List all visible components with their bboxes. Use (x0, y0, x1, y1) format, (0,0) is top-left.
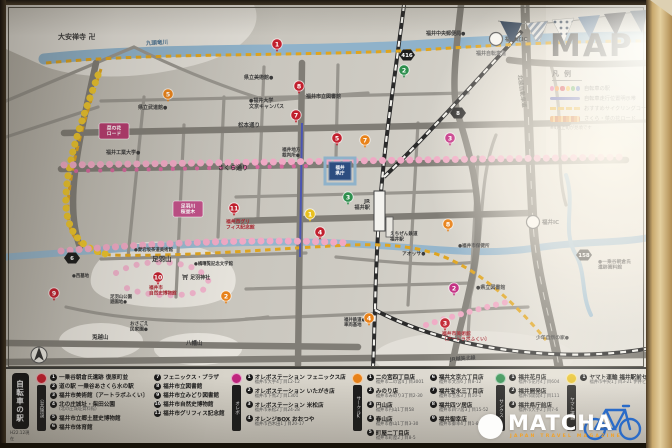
legend-row-stations: 自転車の駅 (550, 85, 644, 92)
section-columns: 1二の宮四丁目店福井市二の宮4丁目30012みのり店福井市みのり3丁目2-303… (367, 373, 489, 442)
directory-item: 1一乗谷朝倉氏遺跡 復原町並 (50, 373, 148, 381)
item-name: 福井市立図書館 (163, 382, 202, 390)
item-number-badge: 1 (367, 374, 374, 381)
item-name: 福井市立郷土歴史博物館 (59, 414, 121, 422)
map-label: おさごえ民家園● (130, 320, 149, 332)
item-name: 福井市自然史博物館 (163, 400, 213, 408)
section-columns: 1オレボステーション フェニックス店福井市大手4丁目12-122オレボステーショ… (246, 373, 346, 442)
cycling-course-swatch (550, 107, 580, 110)
map-label: 兎越山 (92, 333, 109, 341)
matcha-tagline: JAPAN TRAVEL MAGAZINE (510, 435, 622, 440)
item-number-badge: 10 (154, 401, 161, 408)
map-label: ●愛宕坂茶道美術館 (134, 246, 174, 253)
directory-item: 2みのり店福井市みのり3丁目2-30 (367, 387, 424, 400)
directory-item: 5福井市立郷土歴史博物館 (50, 414, 148, 422)
directory-section: サークルK1二の宮四丁目店福井市二の宮4丁目30012みのり店福井市みのり3丁目… (352, 373, 489, 442)
directory-item: 7フェニックス・プラザ (154, 373, 224, 381)
legend-station-dot (560, 86, 564, 91)
item-address: 福井市花月4丁目604 (518, 381, 559, 386)
item-number-badge: 7 (154, 374, 161, 381)
legend-heading: 凡例 (552, 69, 582, 81)
panel-side-note: H22.12現在 (10, 430, 30, 442)
item-number-badge: 6 (430, 374, 437, 381)
item-number-badge: 1 (246, 374, 253, 381)
picture-frame-right (646, 0, 672, 448)
directory-item: 5町屋二丁目店福井市町屋2丁目8-5 (367, 429, 424, 442)
item-number-badge: 2 (50, 383, 57, 390)
item-number-badge: 6 (50, 423, 57, 430)
section-title-bar: サークルK (353, 385, 362, 431)
section-column: 1オレボステーション フェニックス店福井市大手4丁目12-122オレボステーショ… (246, 373, 346, 442)
item-subname: (北の庄城址資料館) (59, 408, 148, 413)
item-address: 福井市米松2丁目24-28 (255, 409, 346, 414)
map-label: ●西墓地 (72, 272, 90, 279)
station-marker-number: 2 (224, 293, 228, 300)
item-address: 福井市下馬2丁目1301 (255, 395, 346, 400)
station-marker-number: 7 (363, 137, 367, 144)
station-marker-number: 8 (297, 83, 301, 90)
matcha-logo-text: MATCHA JAPAN TRAVEL MAGAZINE (508, 413, 622, 440)
picture-frame-left (0, 0, 6, 448)
item-number-badge: 3 (50, 392, 57, 399)
legend-station-dot (555, 86, 559, 91)
bicycle-lane-swatch (550, 97, 580, 100)
map-label: 福井工業大学● (105, 149, 141, 156)
legend-label: おすすめサイクリングコース (584, 105, 646, 112)
map-title: MAP (550, 31, 644, 62)
section-columns: 1一乗谷朝倉氏遺跡 復原町並2道の駅 一乗谷あさくら水の駅3福井市美術館〔アート… (50, 373, 225, 442)
legend-station-dot (566, 86, 570, 91)
legend-station-dot (576, 86, 580, 91)
item-number-badge: 4 (50, 401, 57, 408)
station-marker-number: 1 (308, 211, 312, 218)
item-address: 福井市大手4丁目12-12 (255, 381, 346, 386)
map-paper: 菜の花ロード足羽川桜並木大安禅寺 卍九頭竜川福井自転車道県立武道館●県立美術館●… (6, 5, 646, 443)
matcha-brand: MATCHA (508, 413, 622, 434)
item-address: 福井市みのり3丁目2-30 (376, 395, 424, 400)
legend-label: 自転車の駅 (584, 85, 610, 92)
legend-note: ※4月上旬が見頃です (550, 125, 644, 131)
legend-station-dot (571, 86, 575, 91)
station-marker-number: 4 (318, 229, 323, 236)
map-label: ⛩ 足羽神社 (182, 274, 210, 281)
item-name: 福井市グリフィス記念館 (163, 409, 224, 417)
map-label: さくら通り (218, 164, 248, 172)
item-address: 福井市円山1丁目58 (376, 409, 424, 414)
directory-item: 4春山店福井市春山1丁目3-30 (367, 415, 424, 428)
station-dots-swatch (550, 86, 580, 91)
item-address: 福井市中央1丁目3-21 伊井ビル1階 (589, 381, 646, 386)
station-marker-number: 10 (154, 274, 163, 281)
item-address: 福井市開発4丁目111 (518, 395, 559, 400)
map-label: 大安禅寺 卍 (58, 32, 95, 41)
map-label: 少年自然の家● (535, 334, 569, 341)
item-name: 道の駅 一乗谷あさくら水の駅 (59, 382, 134, 390)
route-8-road (452, 5, 478, 367)
section-color-dot (495, 373, 506, 384)
item-number-badge: 8 (430, 401, 437, 408)
map-tag-label: 菜の花ロード (106, 125, 122, 138)
directory-item: 4北の庄城址・柴田公園(北の庄城址資料館) (50, 400, 148, 413)
station-marker-number: 7 (294, 112, 298, 119)
legend-label: さくら・菜の花ロード (584, 115, 636, 122)
item-name: フェニックス・プラザ (163, 373, 219, 381)
directory-item: 3福井市美術館〔アートラボふくい〕 (50, 391, 148, 399)
directory-item: 8福井四ツ居店福井市四ツ居3丁目15-52 (430, 401, 489, 414)
section-title-bar: 公共施設 (37, 385, 46, 431)
map-tag-label: 足羽川桜並木 (181, 203, 196, 216)
directory-item: 7福井宝永三丁目店福井市宝永3丁目10-1 (430, 387, 489, 400)
item-address: 福井市文京6丁目8-12 (439, 381, 489, 386)
item-address: 福井市春山1丁目3-30 (376, 423, 424, 428)
route-number: 8 (456, 111, 460, 117)
map-label: アオッサ● (402, 250, 425, 257)
item-name: 福井市美術館〔アートラボふくい〕 (59, 391, 148, 399)
item-name: 一乗谷朝倉氏遺跡 復原町並 (59, 373, 128, 381)
item-number-badge: 4 (246, 415, 253, 422)
item-number-badge: 1 (509, 374, 516, 381)
directory-item: 6福井市体育館 (50, 423, 148, 431)
station-marker-number: 3 (443, 320, 447, 327)
panel-side-title-bar: 自転車の駅 (12, 373, 29, 429)
station-marker-number: 3 (448, 135, 452, 142)
forest-area-northwest (6, 5, 257, 77)
section-header: サークルK (352, 373, 364, 442)
item-number-badge: 3 (509, 401, 516, 408)
item-address: 福井市西木田1丁目20-17 (255, 423, 346, 428)
section-color-dot (566, 373, 577, 384)
directory-item: 2福井開発店福井市開発4丁目111 (509, 387, 559, 400)
station-marker-number: 5 (166, 91, 170, 98)
section-header: オレボ (231, 373, 243, 442)
item-number-badge: 7 (430, 387, 437, 394)
section-column: 1一乗谷朝倉氏遺跡 復原町並2道の駅 一乗谷あさくら水の駅3福井市美術館〔アート… (50, 373, 148, 442)
directory-section: 公共施設1一乗谷朝倉氏遺跡 復原町並2道の駅 一乗谷あさくら水の駅3福井市美術館… (35, 373, 225, 442)
map-label: 足羽山 (152, 254, 172, 263)
map-label: 八幡山 (185, 339, 203, 347)
legend-panel: MAP 凡例 自転車の駅 自転車走行位置明示帯 おすすめサイクリングコース さく… (550, 31, 644, 131)
framed-cycling-map-photo: 菜の花ロード足羽川桜並木大安禅寺 卍九頭竜川福井自転車道県立武道館●県立美術館●… (0, 0, 672, 448)
directory-section: オレボ1オレボステーション フェニックス店福井市大手4丁目12-122オレボステ… (231, 373, 346, 442)
directory-item: 1福井花月店福井市花月4丁目604 (509, 373, 559, 386)
item-number-badge: 5 (367, 429, 374, 436)
directory-item: 11福井市グリフィス記念館 (154, 409, 224, 417)
directory-item: 1二の宮四丁目店福井市二の宮4丁目3001 (367, 373, 424, 386)
directory-item: 3オレボステーション 米松店福井市米松2丁目24-28 (246, 401, 346, 414)
item-number-badge: 2 (367, 387, 374, 394)
station-marker-number: 2 (402, 67, 406, 74)
station-marker-number: 5 (335, 135, 339, 142)
directory-item: 1オレボステーション フェニックス店福井市大手4丁目12-12 (246, 373, 346, 386)
directory-item: 10福井市自然史博物館 (154, 400, 224, 408)
item-number-badge: 11 (154, 410, 161, 417)
picture-frame-bottom (0, 443, 672, 448)
item-number-badge: 1 (580, 374, 587, 381)
map-label: 福井鉄道●車両基地 (343, 316, 366, 328)
map-label: ●橘曙覧記念文学館 (194, 260, 234, 267)
directory-item: 1ヤマト運輸 福井駅前センター福井市中央1丁目3-21 伊井ビル1階 (580, 373, 646, 386)
panel-side-title: 自転車の駅 H22.12現在 (10, 373, 30, 442)
matcha-watermark: MATCHA JAPAN TRAVEL MAGAZINE (478, 413, 622, 440)
map-label: 福井中央郵便局● (425, 30, 466, 37)
directory-item: 8福井市立図書館 (154, 382, 224, 390)
jr-fukui-station-building (374, 191, 385, 231)
compass-north-icon (31, 347, 47, 363)
route-number: 416 (401, 53, 413, 59)
station-marker-number: 1 (275, 41, 279, 48)
item-number-badge: 4 (367, 415, 374, 422)
section-color-dot (352, 373, 363, 384)
section-column: 7フェニックス・プラザ8福井市立図書館9福井市立みどり図書館10福井市自然史博物… (154, 373, 224, 442)
section-column: 1二の宮四丁目店福井市二の宮4丁目30012みのり店福井市みのり3丁目2-303… (367, 373, 424, 442)
map-label: ●一乗谷朝倉氏遺跡資料館 (597, 258, 631, 271)
legend-station-dot (550, 86, 554, 91)
item-address: 福井市二の宮4丁目3001 (376, 381, 424, 386)
station-marker-number: 2 (452, 285, 456, 292)
item-address: 福井市町屋2丁目8-5 (376, 437, 424, 442)
item-number-badge: 9 (430, 415, 437, 422)
map-label: 県立美術館● (244, 74, 274, 81)
legend-row-flower: さくら・菜の花ロード (550, 115, 644, 122)
section-color-dot (36, 373, 47, 384)
item-number-badge: 2 (509, 387, 516, 394)
legend-row-lane: 自転車走行位置明示帯 (550, 95, 644, 102)
item-number-badge: 9 (154, 392, 161, 399)
map-label: ●県立図書館 (476, 284, 505, 291)
item-name: 福井市体育館 (59, 423, 93, 431)
map-area: 菜の花ロード足羽川桜並木大安禅寺 卍九頭竜川福井自転車道県立武道館●県立美術館●… (6, 5, 646, 367)
map-label: えちぜん鉄道福井駅 (389, 230, 418, 242)
map-label: 福井県庁 (334, 164, 345, 176)
map-label: 県立武道館● (138, 104, 168, 111)
directory-item: 3円山店福井市円山1丁目58 (367, 401, 424, 414)
station-marker-number: 11 (230, 205, 239, 212)
flower-road-swatch (550, 116, 580, 122)
section-header: 公共施設 (35, 373, 47, 442)
directory-item: 4オレンジBOX おおつや福井市西木田1丁目20-17 (246, 415, 346, 428)
map-label: 福井自転車道 (475, 50, 506, 57)
map-label: 松本通り (238, 121, 260, 129)
item-number-badge: 3 (246, 401, 253, 408)
station-marker-number: 4 (367, 315, 372, 322)
directory-item: 2オレボステーション いたがき店福井市下馬2丁目1301 (246, 387, 346, 400)
interchange-label: 福井IC (541, 218, 559, 226)
directory-item: 9福井市立みどり図書館 (154, 391, 224, 399)
matcha-logo-circle (478, 414, 503, 439)
directory-item: 2道の駅 一乗谷あさくら水の駅 (50, 382, 148, 390)
item-address: 福井市宝永3丁目10-1 (439, 395, 489, 400)
legend-row-course: おすすめサイクリングコース (550, 105, 644, 112)
item-name: 福井市立みどり図書館 (163, 391, 219, 399)
directory-item: 6福井文京六丁目店福井市文京6丁目8-12 (430, 373, 489, 386)
picture-frame-top (0, 0, 660, 5)
item-number-badge: 1 (50, 374, 57, 381)
legend-label: 自転車走行位置明示帯 (584, 95, 636, 102)
item-number-badge: 5 (50, 414, 57, 421)
route-number: 158 (578, 253, 590, 259)
item-number-badge: 8 (154, 383, 161, 390)
map-label: JR福井駅 (353, 199, 370, 211)
item-number-badge: 2 (246, 387, 253, 394)
station-marker-number: 3 (346, 194, 350, 201)
route-number: 6 (70, 256, 74, 262)
section-color-dot (231, 373, 242, 384)
map-label: 福井地方裁判所● (281, 146, 301, 158)
interchange-circle (527, 216, 540, 229)
map-label: ●福井市保健所 (458, 242, 490, 249)
section-title-bar: オレボ (232, 385, 241, 431)
map-label: 福井市立図書館 (305, 93, 341, 100)
station-marker-number: 8 (446, 221, 450, 228)
station-marker-number: 9 (52, 290, 56, 297)
item-number-badge: 3 (367, 401, 374, 408)
